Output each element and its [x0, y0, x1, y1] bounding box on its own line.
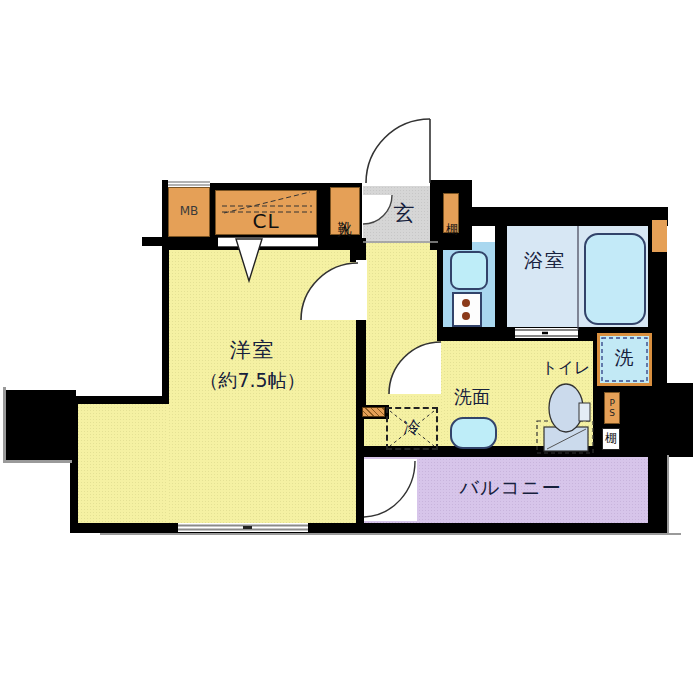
wall-corridor-mid	[356, 318, 366, 410]
entrance-shelf-label: 棚	[444, 213, 458, 214]
outer-line-bottomleft	[3, 460, 72, 463]
pipe-space-box: PS	[604, 392, 620, 424]
entrance-name: 玄	[394, 201, 415, 225]
pipe-space-label: PS	[607, 398, 617, 418]
bathtub	[584, 233, 646, 325]
wall-kitchen-left	[437, 240, 443, 340]
balcony-door	[364, 459, 417, 521]
right-wall-duct	[652, 220, 667, 252]
wall-bottom	[70, 523, 668, 533]
balcony-label: バルコニー	[438, 477, 583, 499]
wall-balcony-right	[648, 455, 667, 533]
main-door-opening	[356, 260, 367, 320]
washing-machine-label: 洗	[606, 347, 642, 369]
bathroom-sliding-door	[515, 328, 578, 338]
main-room-name: 洋室	[230, 338, 276, 362]
wall-left-stub	[142, 237, 162, 246]
outer-line-bottom	[100, 533, 681, 535]
refrigerator-name: 冷	[404, 417, 421, 437]
closet-box: CL	[215, 190, 317, 235]
utility-shelf-label: 棚	[605, 432, 617, 446]
meter-box: MB	[168, 187, 210, 237]
main-room-area-lower	[77, 400, 168, 525]
entrance-label: 玄	[386, 201, 422, 225]
toilet-label: トイレ	[535, 359, 597, 377]
closet-label: CL	[252, 210, 279, 233]
utility-shelf-box: 棚	[602, 428, 620, 450]
entry-door-arc	[366, 119, 430, 183]
threshold-hatch	[362, 407, 385, 417]
washbasin	[450, 417, 497, 449]
main-room-size-label: （約7.5帖）	[165, 370, 340, 392]
toilet-name: トイレ	[541, 358, 590, 377]
wall-room-balcony	[356, 417, 364, 533]
stove	[452, 292, 482, 327]
shoe-cabinet-label: 靴入	[337, 210, 353, 212]
washing-machine-name: 洗	[615, 346, 634, 368]
wall-corridor-post	[350, 238, 366, 262]
refrigerator-label: 冷	[394, 418, 430, 438]
wall-kitchen-bath	[495, 223, 507, 335]
wall-bath-top	[443, 207, 668, 226]
bathroom-name: 浴室	[524, 249, 566, 271]
entry-door-fill	[366, 119, 430, 183]
entrance-shelf-box: 棚	[443, 193, 459, 233]
floor-plan: MB CL 靴入 棚 PS 棚	[0, 0, 700, 700]
meter-box-label: MB	[180, 205, 199, 219]
washroom-name: 洗面	[454, 386, 490, 407]
closet-door-strip	[218, 237, 318, 247]
washroom-label: 洗面	[444, 387, 500, 408]
shoe-cabinet-box: 靴入	[330, 187, 360, 235]
kitchen-sink	[450, 251, 488, 290]
wall-step-horizontal	[70, 396, 169, 404]
balcony-name: バルコニー	[460, 476, 562, 498]
main-room-size: （約7.5帖）	[199, 369, 305, 391]
mb-vent-window	[168, 180, 210, 187]
bathroom-label: 浴室	[509, 250, 581, 272]
wall-outer-block-bottomleft	[6, 390, 76, 462]
bottom-window	[178, 523, 308, 532]
main-room-label: 洋室	[180, 338, 325, 362]
outer-line-left	[3, 387, 6, 463]
outer-line-right	[667, 455, 669, 535]
